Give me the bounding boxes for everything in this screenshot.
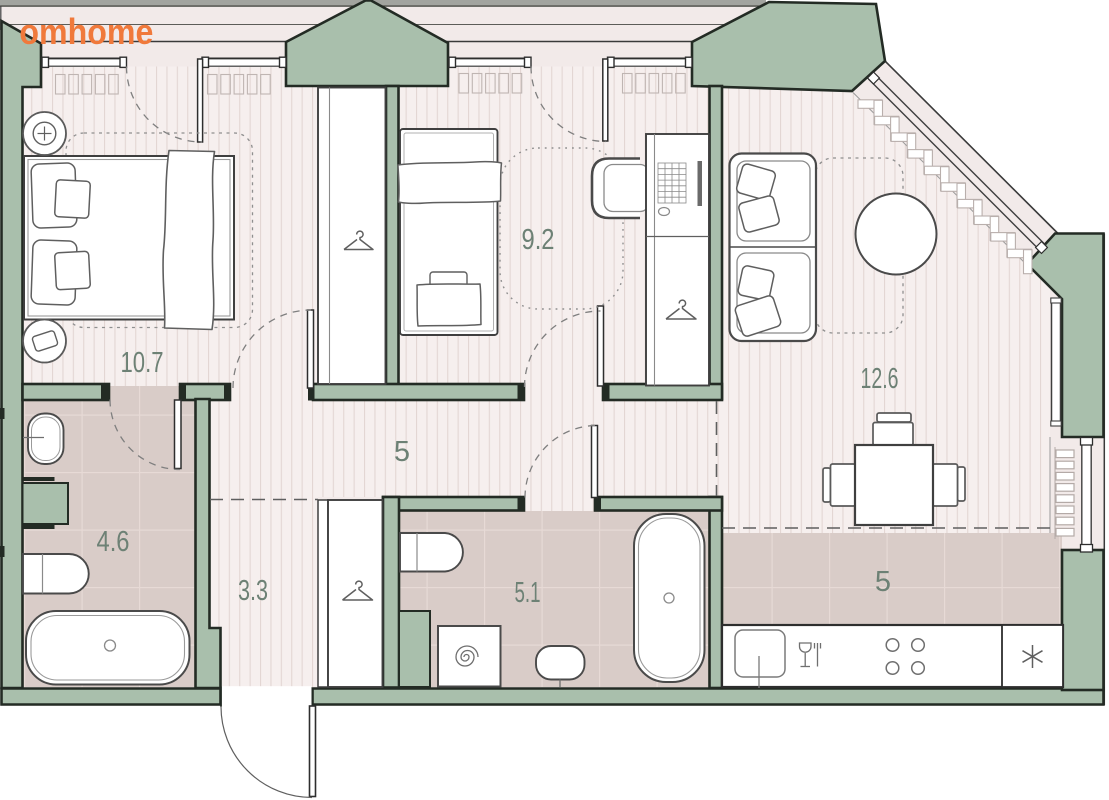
svg-text:12.6: 12.6 bbox=[861, 363, 899, 395]
svg-text:10.7: 10.7 bbox=[121, 347, 164, 379]
svg-text:5: 5 bbox=[875, 566, 891, 598]
svg-text:5.1: 5.1 bbox=[515, 577, 541, 609]
svg-text:omhome: omhome bbox=[19, 11, 153, 52]
svg-text:3.3: 3.3 bbox=[238, 575, 268, 607]
svg-text:5: 5 bbox=[394, 436, 410, 468]
svg-text:9.2: 9.2 bbox=[522, 224, 555, 256]
svg-text:4.6: 4.6 bbox=[97, 526, 130, 558]
